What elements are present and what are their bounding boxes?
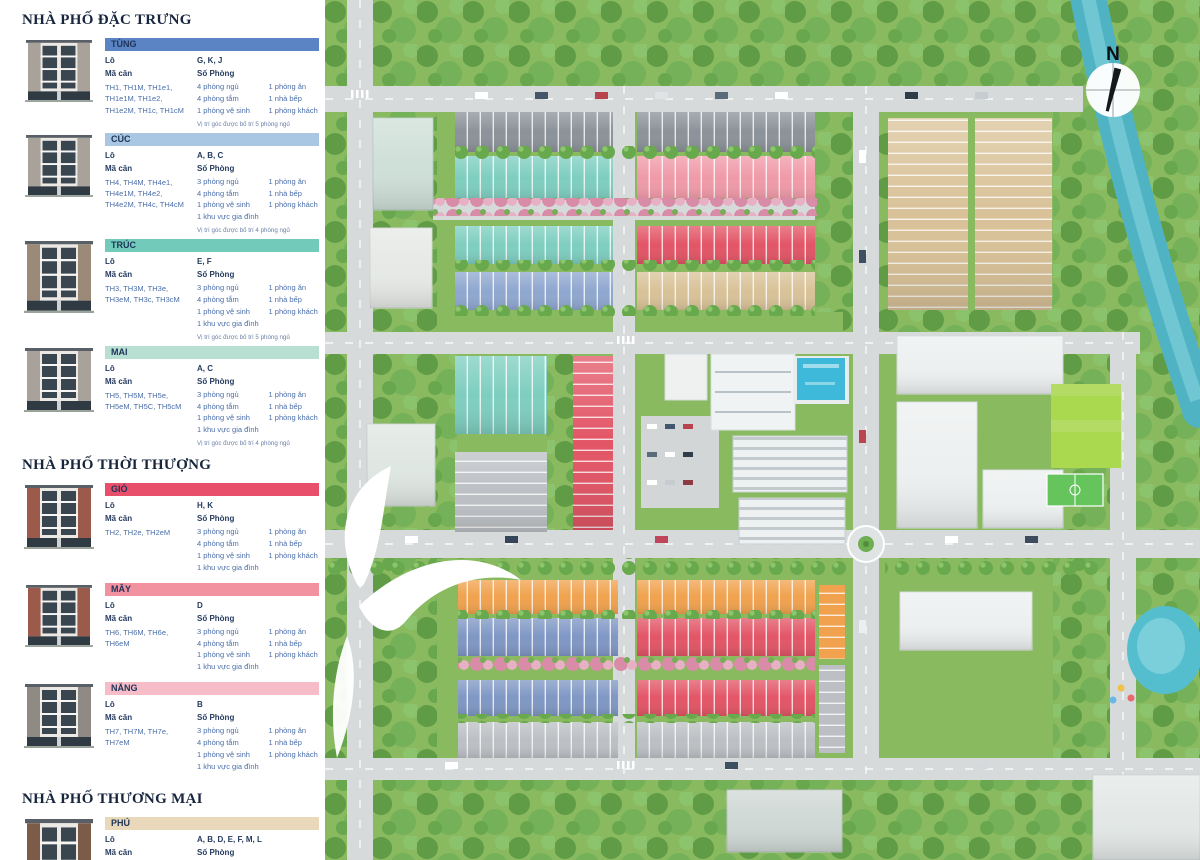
lo-value: A, C	[197, 364, 319, 373]
unit-codes: TH4, TH4M, TH4e1, TH4e1M, TH4e2, TH4e2M,…	[105, 177, 197, 211]
rooms-list: 3 phòng ngủ1 phòng ăn 4 phòng tắm1 nhà b…	[197, 177, 319, 224]
house-thumbnail	[22, 239, 96, 341]
legend-panel: NHÀ PHỐ ĐẶC TRƯNG TÙNG Lô Mã căn TH1, TH…	[0, 0, 325, 860]
unit-codes: TH5, TH5M, TH5e, TH5eM, TH5C, TH5cM	[105, 390, 197, 413]
lo-value: D	[197, 601, 319, 610]
so-phong-label: Số Phòng	[197, 848, 319, 857]
so-phong-label: Số Phòng	[197, 69, 319, 78]
type-header: TRÚC	[105, 239, 319, 252]
type-card-tung: TÙNG Lô Mã căn TH1, TH1M, TH1e1, TH1e1M,…	[22, 38, 319, 128]
so-phong-label: Số Phòng	[197, 377, 319, 386]
so-phong-label: Số Phòng	[197, 514, 319, 523]
ma-can-label: Mã căn	[105, 848, 197, 857]
lo-label: Lô	[105, 56, 197, 65]
ma-can-label: Mã căn	[105, 69, 197, 78]
rooms-list: 3 phòng ngủ1 phòng ăn 4 phòng tắm1 nhà b…	[197, 726, 319, 773]
corner-note: Vị trí góc được bố trí 4 phòng ngủ	[197, 227, 319, 234]
type-header: GIÓ	[105, 483, 319, 496]
lo-label: Lô	[105, 501, 197, 510]
lo-value: A, B, D, E, F, M, L	[197, 835, 319, 844]
type-card-phu: PHÚ Lô Mã căn SH2b, SH2bM, SH2e, SH2c2, …	[22, 817, 319, 860]
type-card-cuc: CÚC Lô Mã căn TH4, TH4M, TH4e1, TH4e1M, …	[22, 133, 319, 235]
type-header: NẮNG	[105, 682, 319, 695]
unit-codes: TH7, TH7M, TH7e, TH7eM	[105, 726, 197, 749]
type-header: TÙNG	[105, 38, 319, 51]
type-header: PHÚ	[105, 817, 319, 830]
lo-label: Lô	[105, 257, 197, 266]
type-card-gio: GIÓ Lô Mã căn TH2, TH2e, TH2eM H, K Số P…	[22, 483, 319, 578]
section-title-dac-trung: NHÀ PHỐ ĐẶC TRƯNG	[22, 12, 319, 29]
type-card-nang: NẮNG Lô Mã căn TH7, TH7M, TH7e, TH7eM B …	[22, 682, 319, 777]
lo-value: G, K, J	[197, 56, 319, 65]
lo-label: Lô	[105, 601, 197, 610]
house-thumbnail	[22, 583, 96, 678]
section-title-thuong-mai: NHÀ PHỐ THƯƠNG MẠI	[22, 791, 319, 808]
type-header: MAI	[105, 346, 319, 359]
ma-can-label: Mã căn	[105, 270, 197, 279]
ma-can-label: Mã căn	[105, 614, 197, 623]
masterplan-map: N	[325, 0, 1200, 860]
lo-value: E, F	[197, 257, 319, 266]
section-title-thoi-thuong: NHÀ PHỐ THỜI THƯỢNG	[22, 457, 319, 474]
corner-note: Vị trí góc được bố trí 4 phòng ngủ	[197, 440, 319, 447]
lo-label: Lô	[105, 700, 197, 709]
unit-codes: TH3, TH3M, TH3e, TH3eM, TH3c, TH3cM	[105, 283, 197, 306]
lo-value: A, B, C	[197, 151, 319, 160]
so-phong-label: Số Phòng	[197, 270, 319, 279]
house-thumbnail	[22, 133, 96, 235]
house-thumbnail	[22, 483, 96, 578]
rooms-list: 3 phòng ngủ1 phòng ăn 4 phòng tắm1 nhà b…	[197, 283, 319, 330]
type-card-mai: MAI Lô Mã căn TH5, TH5M, TH5e, TH5eM, TH…	[22, 346, 319, 448]
housing-east-strip	[819, 585, 845, 753]
rooms-list: 3 phòng ngủ1 phòng ăn 4 phòng tắm1 nhà b…	[197, 390, 319, 437]
so-phong-label: Số Phòng	[197, 713, 319, 722]
ma-can-label: Mã căn	[105, 514, 197, 523]
house-thumbnail	[22, 346, 96, 448]
lo-label: Lô	[105, 835, 197, 844]
lo-label: Lô	[105, 364, 197, 373]
ma-can-label: Mã căn	[105, 164, 197, 173]
unit-codes: TH1, TH1M, TH1e1, TH1e1M, TH1e2, TH1e2M,…	[105, 82, 197, 116]
corner-note: Vị trí góc được bố trí 5 phòng ngủ	[197, 121, 319, 128]
ma-can-label: Mã căn	[105, 713, 197, 722]
type-header: MÂY	[105, 583, 319, 596]
roundabout	[848, 526, 884, 562]
lo-label: Lô	[105, 151, 197, 160]
rooms-list: 4 phòng ngủ1 phòng ăn 4 phòng tắm1 nhà b…	[197, 82, 319, 117]
house-thumbnail	[22, 817, 96, 860]
house-thumbnail	[22, 38, 96, 128]
lo-value: B	[197, 700, 319, 709]
rooms-list: 3 phòng ngủ1 phòng ăn 4 phòng tắm1 nhà b…	[197, 527, 319, 574]
so-phong-label: Số Phòng	[197, 614, 319, 623]
house-thumbnail	[22, 682, 96, 777]
rooms-list: 3 phòng ngủ1 phòng ăn 4 phòng tắm1 nhà b…	[197, 627, 319, 674]
so-phong-label: Số Phòng	[197, 164, 319, 173]
type-card-truc: TRÚC Lô Mã căn TH3, TH3M, TH3e, TH3eM, T…	[22, 239, 319, 341]
unit-codes: TH2, TH2e, TH2eM	[105, 527, 197, 538]
lo-value: H, K	[197, 501, 319, 510]
type-card-may: MÂY Lô Mã căn TH6, TH6M, TH6e, TH6eM D S…	[22, 583, 319, 678]
corner-note: Vị trí góc được bố trí 5 phòng ngủ	[197, 334, 319, 341]
compass-north-label: N	[1106, 44, 1120, 65]
unit-codes: TH6, TH6M, TH6e, TH6eM	[105, 627, 197, 650]
ma-can-label: Mã căn	[105, 377, 197, 386]
masterplan-brochure: NHÀ PHỐ ĐẶC TRƯNG TÙNG Lô Mã căn TH1, TH…	[0, 0, 1200, 860]
type-header: CÚC	[105, 133, 319, 146]
